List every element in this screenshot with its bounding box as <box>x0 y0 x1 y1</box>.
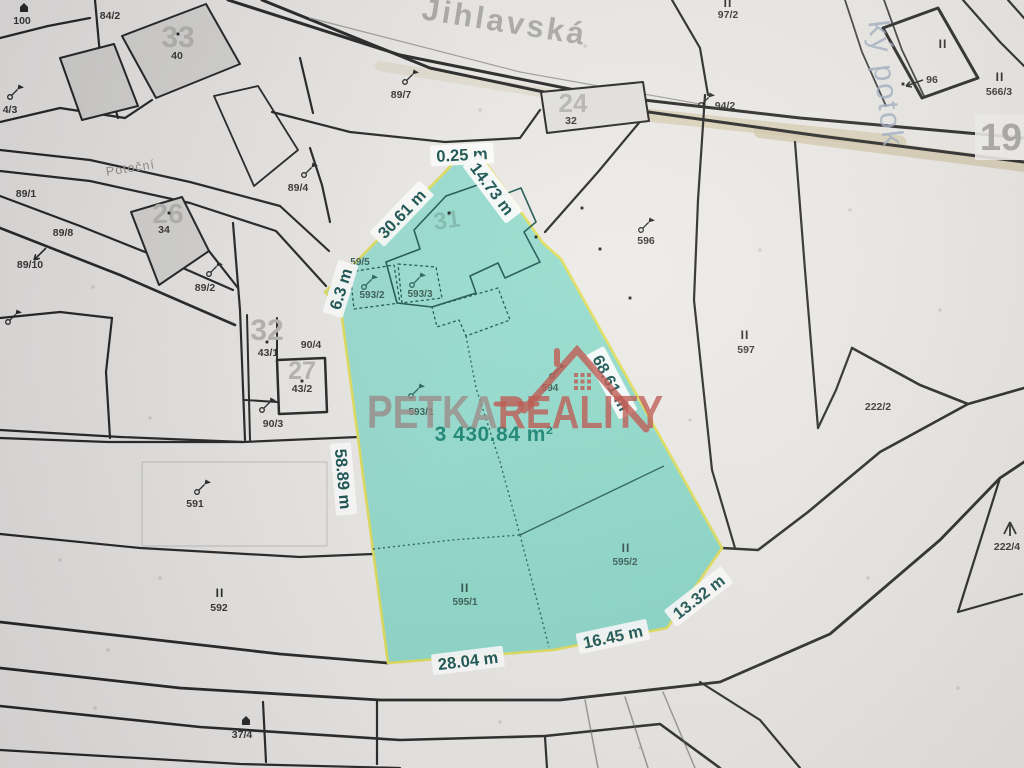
parcel-label: II <box>939 37 948 51</box>
parcel-label: 96 <box>926 74 938 86</box>
faint-mark <box>938 308 942 312</box>
house-number: 24 <box>559 88 588 118</box>
parcel-label: 593/3 <box>407 289 432 300</box>
faint-mark <box>93 706 97 710</box>
parcel-label: II <box>216 586 225 600</box>
parcel-label: 34 <box>158 224 170 236</box>
faint-mark <box>498 720 502 724</box>
parcel-label: 84/2 <box>100 10 121 22</box>
faint-mark <box>58 558 62 562</box>
parcel-label: 94/2 <box>715 100 736 112</box>
parcel-label: 89/10 <box>17 259 43 271</box>
parcel-label: 89/1 <box>16 188 37 200</box>
parcel-label: 595/2 <box>612 557 637 568</box>
parcel-label: 37/4 <box>232 729 253 741</box>
parcel-label: 89/4 <box>288 182 309 194</box>
parcel-label: 40 <box>171 50 183 62</box>
faint-mark <box>148 416 152 420</box>
faint-mark <box>848 208 852 212</box>
cadastral-map: 10084/24/389/189/889/1089/289/489/794/2I… <box>0 0 1024 768</box>
faint-mark <box>91 285 95 289</box>
survey-point <box>629 297 632 300</box>
parcel-label: 90/3 <box>263 418 284 430</box>
faint-mark <box>158 576 162 580</box>
parcel-label: 566/3 <box>986 86 1012 98</box>
faint-mark <box>106 648 110 652</box>
parcel-label: 595/1 <box>452 597 477 608</box>
parcel-label: 32 <box>565 115 577 127</box>
faint-mark <box>956 686 960 690</box>
survey-point <box>301 380 304 383</box>
faint-mark <box>638 746 642 750</box>
survey-point <box>266 341 269 344</box>
faint-mark <box>688 418 692 422</box>
parcel-label: 591 <box>186 498 204 510</box>
parcel-label: 100 <box>13 15 31 27</box>
parcel-label: 89/2 <box>195 282 216 294</box>
parcel-label: 593/2 <box>359 290 384 301</box>
parcel-label: 222/4 <box>994 541 1020 553</box>
survey-point <box>599 248 602 251</box>
parcel-label: II <box>996 70 1005 84</box>
survey-point <box>535 236 538 239</box>
parcel-label: 597 <box>737 344 755 356</box>
faint-mark <box>866 576 870 580</box>
parcel-label: 43/1 <box>258 347 279 359</box>
parcel-label: 90/4 <box>301 339 322 351</box>
parcel-label: 4/3 <box>3 104 18 116</box>
parcel-label: 97/2 <box>718 9 739 21</box>
parcel-label: 596 <box>637 235 655 247</box>
parcel-label: 222/2 <box>865 401 891 413</box>
faint-mark <box>478 108 482 112</box>
house-number: 19 <box>980 117 1022 159</box>
parcel-label: II <box>461 581 470 595</box>
parcel-label: II <box>741 328 750 342</box>
survey-point <box>168 212 171 215</box>
survey-point <box>448 212 451 215</box>
survey-point <box>177 33 180 36</box>
parcel-label: 43/2 <box>292 383 313 395</box>
parcel-label: 89/8 <box>53 227 74 239</box>
parcel-label: 592 <box>210 602 228 614</box>
faint-mark <box>758 248 762 252</box>
parcel-label: 89/7 <box>391 89 412 101</box>
cadastral-map-photo: 10084/24/389/189/889/1089/289/489/794/2I… <box>0 0 1024 768</box>
house-number: 31 <box>432 205 462 235</box>
parcel-label: II <box>622 541 631 555</box>
survey-point <box>581 207 584 210</box>
